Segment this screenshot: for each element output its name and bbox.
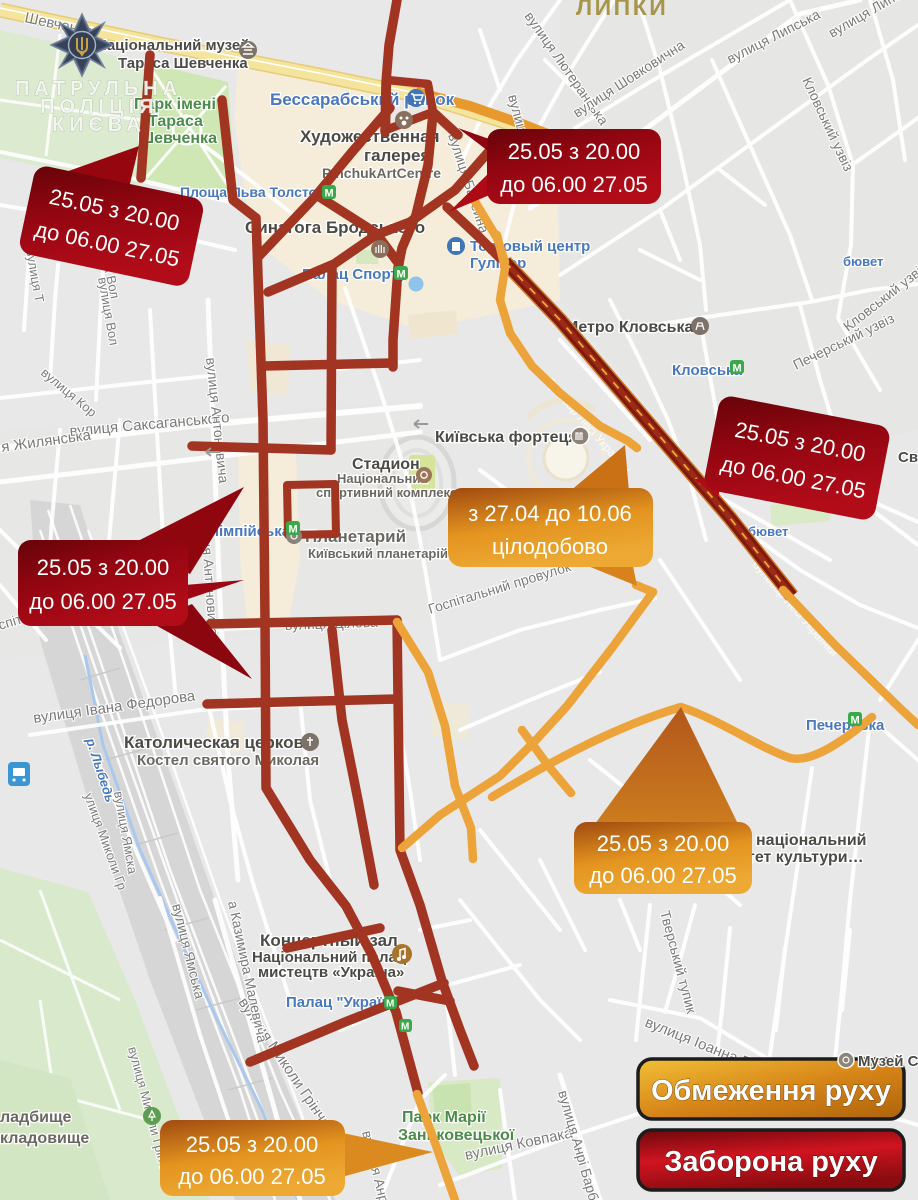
svg-text:до 06.00 27.05: до 06.00 27.05: [29, 589, 176, 614]
svg-text:M: M: [289, 524, 298, 536]
svg-text:національний: національний: [756, 832, 867, 849]
svg-text:M: M: [733, 363, 742, 375]
svg-text:ладбище: ладбище: [0, 1109, 71, 1126]
svg-text:Обмеження руху: Обмеження руху: [651, 1075, 891, 1107]
svg-text:з 27.04 до 10.06: з 27.04 до 10.06: [468, 501, 632, 526]
svg-text:Національний музей: Національний музей: [96, 37, 249, 54]
svg-text:Заборона руху: Заборона руху: [664, 1146, 877, 1178]
svg-text:Парк Марії: Парк Марії: [402, 1109, 486, 1126]
svg-text:25.05 з 20.00: 25.05 з 20.00: [597, 831, 729, 856]
svg-text:КИЄВА: КИЄВА: [52, 114, 146, 136]
svg-text:бювет: бювет: [843, 254, 883, 269]
svg-text:Католическая церковь: Католическая церковь: [124, 733, 314, 752]
svg-text:M: M: [386, 999, 394, 1010]
svg-text:ЛИПКИ: ЛИПКИ: [576, 0, 668, 20]
svg-text:Костел святого Миколая: Костел святого Миколая: [137, 752, 319, 769]
svg-text:до 06.00 27.05: до 06.00 27.05: [178, 1164, 325, 1189]
svg-text:галерея: галерея: [364, 146, 430, 165]
svg-text:M: M: [851, 715, 860, 727]
svg-text:25.05 з 20.00: 25.05 з 20.00: [186, 1132, 318, 1157]
svg-text:Музей С: Музей С: [858, 1053, 918, 1070]
svg-text:M: M: [401, 1022, 409, 1033]
svg-text:Шевченка: Шевченка: [138, 130, 217, 147]
svg-text:кладовище: кладовище: [0, 1130, 89, 1147]
svg-text:до 06.00 27.05: до 06.00 27.05: [500, 172, 647, 197]
svg-text:M: M: [397, 269, 406, 281]
svg-text:25.05 з 20.00: 25.05 з 20.00: [37, 555, 169, 580]
svg-text:цілодобово: цілодобово: [492, 534, 608, 559]
svg-text:Метро Кловська: Метро Кловська: [565, 319, 694, 336]
svg-text:Національний: Національний: [337, 471, 428, 486]
svg-text:тет культури…: тет культури…: [747, 849, 864, 866]
svg-text:до 06.00 27.05: до 06.00 27.05: [589, 863, 736, 888]
svg-text:Свя: Свя: [898, 449, 918, 466]
svg-text:25.05 з 20.00: 25.05 з 20.00: [508, 139, 640, 164]
svg-text:Київська фортеця: Київська фортеця: [435, 429, 578, 446]
svg-text:M: M: [325, 188, 334, 200]
svg-text:Київський планетарій: Київський планетарій: [308, 546, 448, 561]
svg-text:Тараса Шевченка: Тараса Шевченка: [118, 55, 248, 72]
